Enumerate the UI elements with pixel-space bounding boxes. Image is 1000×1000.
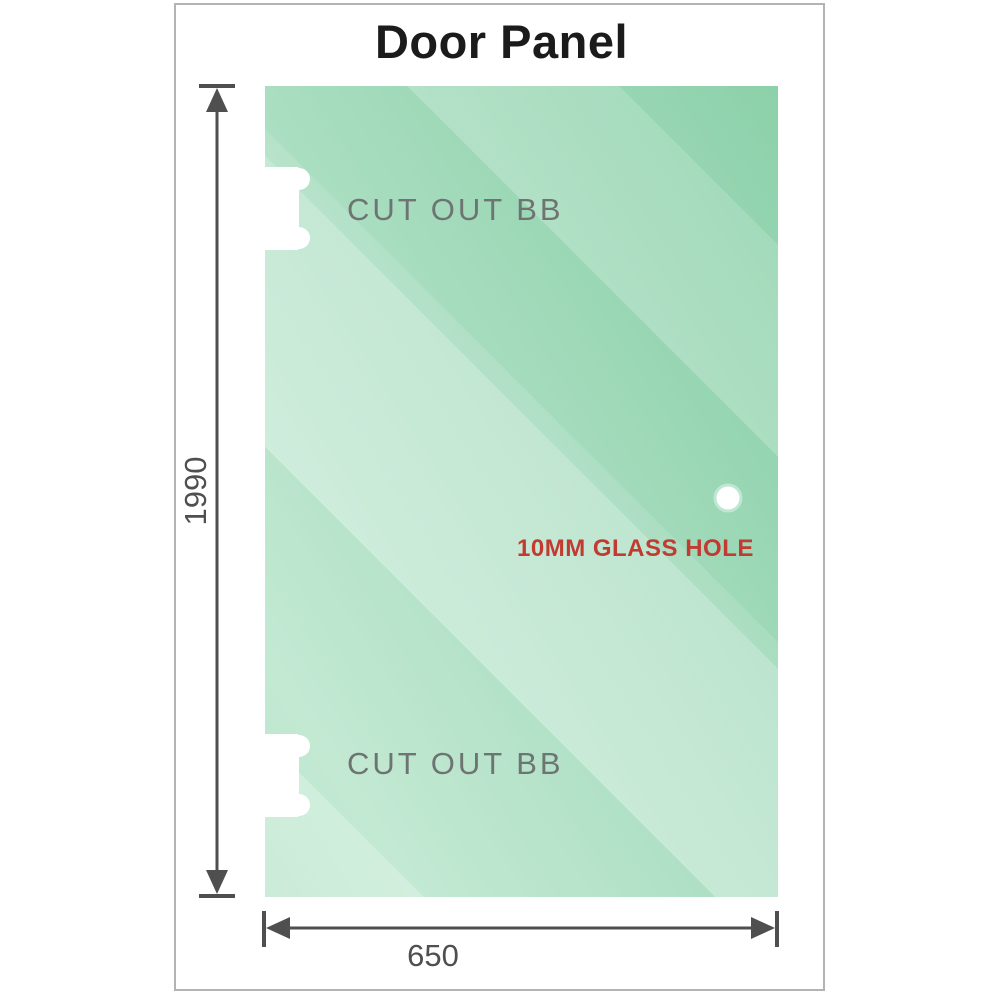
hinge-cutout-top-icon: [263, 167, 310, 250]
horizontal-dimension-arrow: [264, 911, 777, 947]
cutout-bottom-label: CUT OUT BB: [347, 746, 564, 782]
glass-hole-label: 10MM GLASS HOLE: [517, 535, 754, 563]
hinge-cutout-bottom-icon: [263, 734, 310, 817]
cutout-top-label: CUT OUT BB: [347, 192, 564, 228]
height-dimension-value: 1990: [178, 457, 214, 526]
glass-hole-icon: [715, 485, 741, 511]
diagram-shapes-layer: [0, 0, 1000, 1000]
width-dimension-value: 650: [407, 938, 459, 974]
diagram-canvas: Door Panel: [0, 0, 1000, 1000]
